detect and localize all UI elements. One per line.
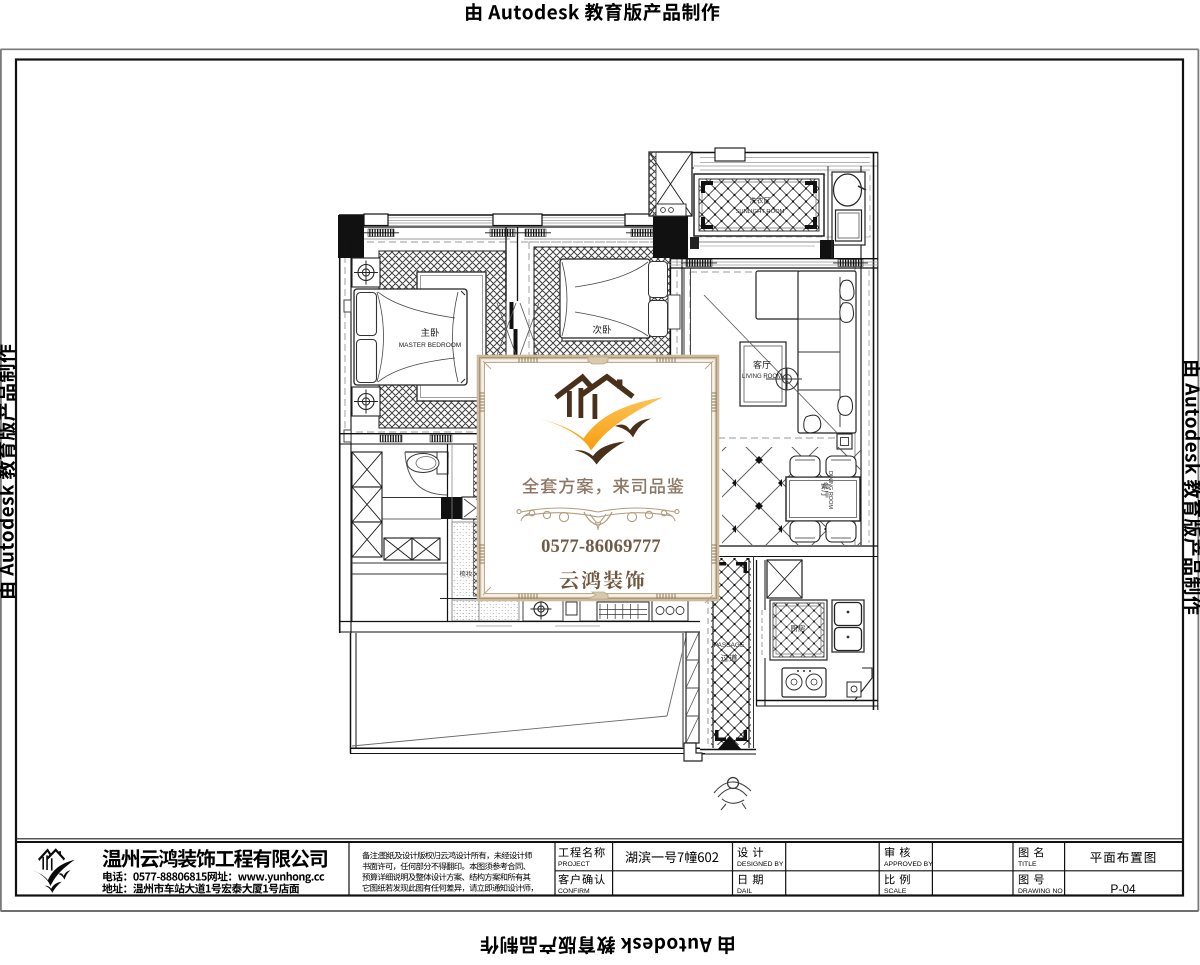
svg-text:PASSAGE: PASSAGE xyxy=(714,642,745,649)
svg-text:CONFIRM: CONFIRM xyxy=(558,888,590,895)
svg-text:DAIL: DAIL xyxy=(737,888,752,895)
svg-text:DINING ROOM: DINING ROOM xyxy=(827,471,833,509)
svg-text:PROJECT: PROJECT xyxy=(558,861,590,868)
svg-text:P-04: P-04 xyxy=(1110,882,1136,896)
svg-text:DESIGNED BY: DESIGNED BY xyxy=(737,861,784,868)
svg-text:APPROVED BY: APPROVED BY xyxy=(884,861,933,868)
svg-text:SUNLIGHT ROOM: SUNLIGHT ROOM xyxy=(736,209,785,215)
svg-text:DRAWING NO: DRAWING NO xyxy=(1018,888,1063,895)
svg-text:TITLE: TITLE xyxy=(1018,861,1037,868)
svg-text:0577-86069777: 0577-86069777 xyxy=(541,537,661,557)
svg-text:MASTER BEDROOM: MASTER BEDROOM xyxy=(399,342,461,349)
svg-text:LIVING ROOM: LIVING ROOM xyxy=(742,374,782,380)
svg-text:SCALE: SCALE xyxy=(884,888,907,895)
